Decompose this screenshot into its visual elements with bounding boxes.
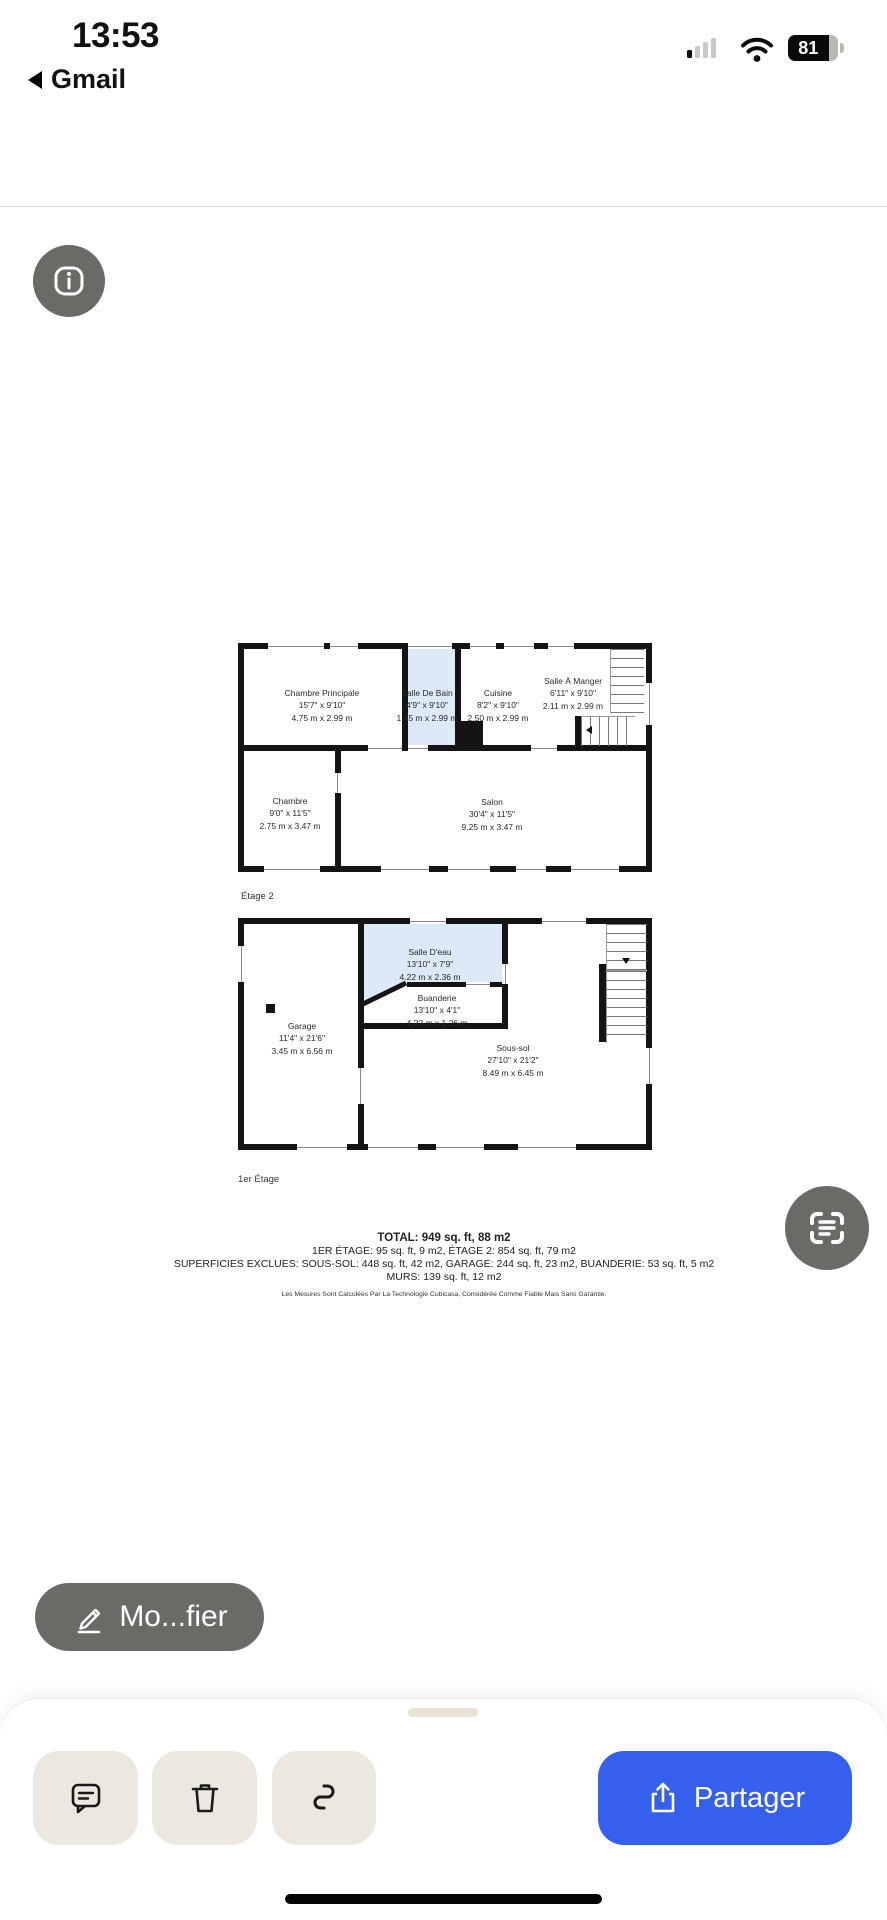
stair-direction-arrow — [622, 958, 630, 964]
wall — [335, 751, 341, 773]
image-canvas[interactable]: Chambre Principale15'7" x 9'10"4.75 m x … — [0, 207, 887, 1699]
window-marker — [297, 1144, 347, 1150]
window-marker — [436, 1144, 484, 1150]
wall — [646, 643, 652, 872]
window-marker — [408, 643, 452, 649]
floorplan-etage-2: Chambre Principale15'7" x 9'10"4.75 m x … — [238, 643, 652, 872]
floor-label-etage-2: Étage 2 — [241, 891, 274, 902]
door-opening — [360, 1068, 361, 1104]
share-button[interactable]: Partager — [598, 1751, 852, 1845]
home-indicator[interactable] — [285, 1894, 602, 1904]
window-marker — [548, 643, 574, 649]
window-marker — [542, 918, 586, 924]
window-marker — [516, 866, 546, 872]
summary-line: 1ER ÉTAGE: 95 sq. ft, 9 m2, ÉTAGE 2: 854… — [124, 1245, 764, 1258]
room-label: Chambre9'0" x 11'5"2.75 m x 3.47 m — [240, 795, 340, 832]
comment-button[interactable] — [33, 1751, 138, 1845]
modify-button[interactable]: Mo...fier — [35, 1583, 264, 1651]
window-marker — [470, 643, 496, 649]
stair-direction-arrow — [586, 726, 592, 734]
window-marker — [571, 866, 619, 872]
wifi-icon — [740, 36, 774, 63]
window-marker — [410, 918, 446, 924]
window-marker — [264, 866, 320, 872]
wall — [502, 984, 508, 1028]
room-label: Salle À Manger6'11" x 9'10"2.11 m x 2.99… — [523, 675, 623, 712]
copy-link-button[interactable] — [272, 1751, 376, 1845]
door-opening — [531, 745, 557, 751]
trash-icon — [184, 1777, 226, 1819]
room-label: Chambre Principale15'7" x 9'10"4.75 m x … — [252, 687, 392, 724]
room-label: Garage11'4" x 21'6"3.45 m x 6.56 m — [252, 1020, 352, 1057]
wall — [599, 964, 606, 1042]
door-opening — [406, 745, 428, 751]
summary-line: MURS: 139 sq. ft, 12 m2 — [124, 1271, 764, 1284]
status-time: 13:53 — [72, 16, 159, 56]
post-block — [266, 1004, 275, 1013]
summary-total: TOTAL: 949 sq. ft, 88 m2 — [124, 1231, 764, 1245]
room-label: Salle D'eau13'10" x 7'9"4.22 m x 2.36 m — [380, 946, 480, 983]
window-marker — [381, 866, 429, 872]
window-marker — [646, 683, 652, 725]
wall — [358, 918, 364, 1068]
summary-line: SUPERFICIES EXCLUES: SOUS-SOL: 448 sq. f… — [124, 1258, 764, 1271]
share-label: Partager — [694, 1782, 805, 1815]
back-app-label: Gmail — [51, 64, 126, 95]
comment-icon — [65, 1777, 107, 1819]
back-triangle-icon — [28, 71, 42, 89]
window-marker — [368, 1144, 418, 1150]
share-icon — [645, 1780, 681, 1816]
pencil-icon — [71, 1599, 107, 1635]
area-summary: TOTAL: 949 sq. ft, 88 m2 1ER ÉTAGE: 95 s… — [124, 1231, 764, 1300]
battery-icon: 81 — [788, 35, 844, 61]
chimney-block — [461, 721, 483, 745]
header-bar: all_floors_9...with_dim.jpg — [0, 98, 887, 207]
wall — [575, 716, 581, 745]
window-marker — [268, 643, 324, 649]
window-marker — [518, 1144, 576, 1150]
floorplan-1er-etage: Salle D'eau13'10" x 7'9"4.22 m x 2.36 m … — [238, 918, 652, 1150]
window-marker — [238, 946, 244, 982]
room-label: Buanderie13'10" x 4'1"4.22 m x 1.26 m — [387, 992, 487, 1029]
wall — [238, 643, 244, 872]
signal-strength-icon — [687, 38, 716, 58]
door-opening — [368, 745, 404, 751]
floor-label-1er-etage: 1er Étage — [238, 1174, 279, 1185]
window-marker — [330, 643, 358, 649]
battery-percent: 81 — [788, 35, 829, 61]
room-label: Salon30'4" x 11'5"9.25 m x 3.47 m — [442, 796, 542, 833]
delete-button[interactable] — [152, 1751, 257, 1845]
link-icon — [303, 1777, 345, 1819]
back-to-app-button[interactable]: Gmail — [28, 64, 126, 95]
room-label: Sous-sol27'10" x 21'2"8.49 m x 6.45 m — [463, 1042, 563, 1079]
window-marker — [448, 866, 490, 872]
info-button[interactable] — [33, 245, 105, 317]
scan-text-icon — [804, 1205, 850, 1251]
room-label: Salle De Bain4'9" x 9'10"1.45 m x 2.99 m — [392, 687, 462, 724]
wall — [358, 1104, 364, 1144]
modify-label: Mo...fier — [119, 1600, 227, 1634]
info-icon — [49, 261, 89, 301]
staircase — [606, 970, 647, 1043]
sheet-drag-handle[interactable] — [408, 1708, 478, 1717]
bottom-sheet: Partager — [0, 1699, 887, 1920]
summary-disclaimer: Les Mesures Sont Calculées Par La Techno… — [124, 1291, 764, 1299]
door-opening — [502, 964, 508, 984]
window-marker — [646, 1048, 652, 1084]
wall — [502, 918, 508, 964]
door-opening — [337, 773, 338, 793]
live-text-scan-button[interactable] — [785, 1186, 869, 1270]
window-marker — [504, 643, 534, 649]
